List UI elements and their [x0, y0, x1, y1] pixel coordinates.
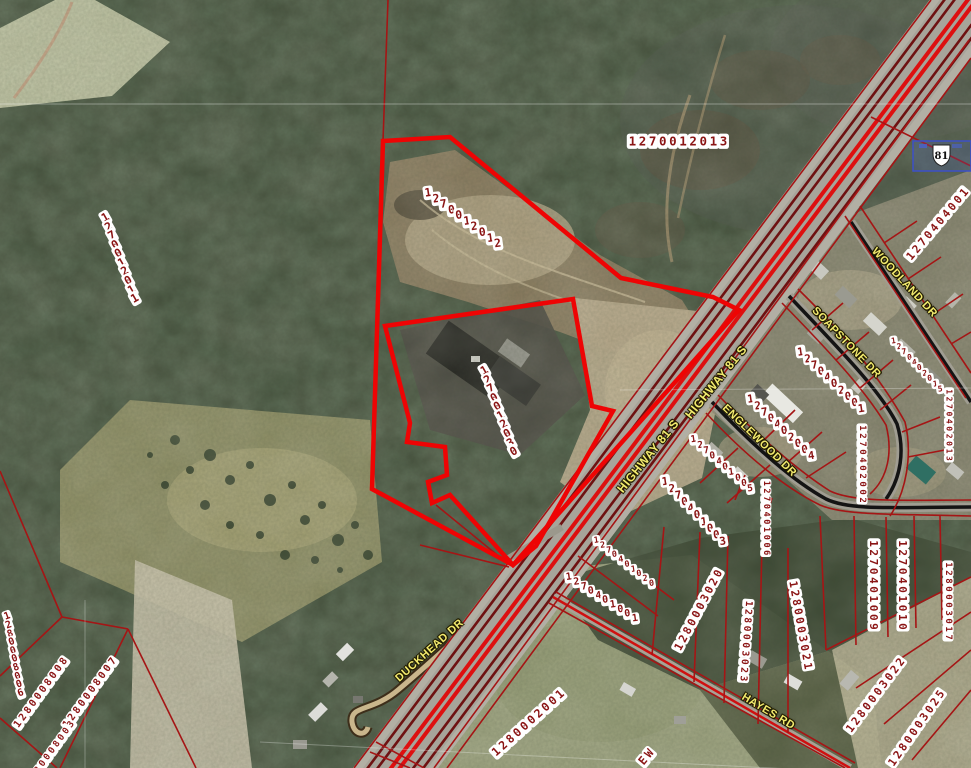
parcel-label-1270401010: 1270401010 [897, 539, 909, 631]
parcel-label-1270401006: 1270401006 [761, 479, 771, 556]
parcel-label-1270402002: 1270402002 [857, 424, 867, 504]
parcel-label-1270402013: 1270402013 [945, 388, 954, 462]
parcel-label-1280003017: 1280003017 [943, 561, 953, 641]
gis-map-viewport[interactable]: 81 1270012013 1270012011 1270012012 1270… [0, 0, 971, 768]
route-shield-81: 81 [913, 141, 971, 171]
parcel-label-1270012013: 1270012013 [627, 134, 728, 148]
parcel-label-1270401009: 1270401009 [868, 539, 880, 631]
shield-route-number: 81 [935, 151, 949, 162]
